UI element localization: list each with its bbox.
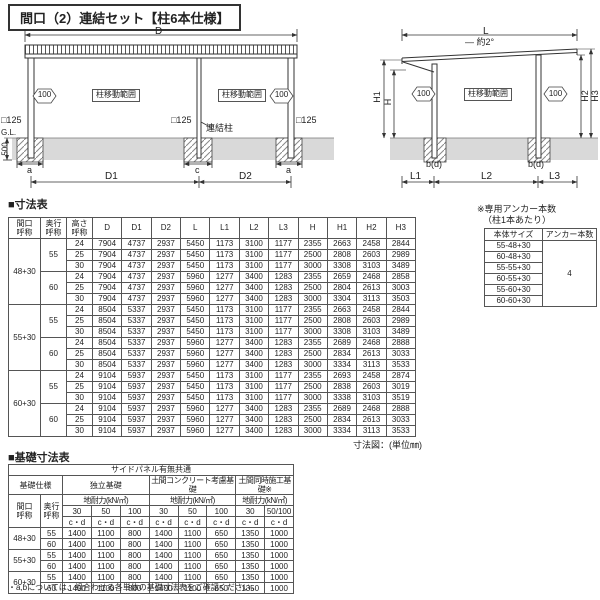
side-dim-h2-label: H2 bbox=[580, 90, 590, 102]
table-cell: 1173 bbox=[210, 261, 239, 272]
table-cell: 2937 bbox=[151, 250, 180, 261]
table-cell: 30 bbox=[67, 426, 93, 437]
table-cell: 4737 bbox=[122, 294, 151, 305]
table-cell: 30 bbox=[67, 327, 93, 338]
table-cell: 8504 bbox=[93, 338, 122, 349]
table-cell: 3019 bbox=[386, 382, 415, 393]
table-cell: 60 bbox=[41, 561, 63, 572]
col-header: L bbox=[181, 218, 210, 239]
table-cell: 3519 bbox=[386, 393, 415, 404]
table-row: 48+3055247904473729375450117331001177235… bbox=[9, 239, 416, 250]
table-row: 60140011008001400110065013501000 bbox=[9, 539, 294, 550]
table-cell: 2689 bbox=[327, 338, 356, 349]
table-row: 3091045937293759601277340012833000333431… bbox=[9, 426, 416, 437]
table-cell: 1350 bbox=[236, 528, 265, 539]
table-cell: 24 bbox=[67, 371, 93, 382]
table-cell: 1100 bbox=[178, 550, 207, 561]
front-dim-a-right-label: a bbox=[286, 166, 291, 176]
table-cell: 2500 bbox=[298, 250, 327, 261]
table-cell: 2937 bbox=[151, 371, 180, 382]
table-cell: 3100 bbox=[239, 371, 268, 382]
table-cell: 2500 bbox=[298, 316, 327, 327]
table-cell: 2355 bbox=[298, 338, 327, 349]
table-cell: 1100 bbox=[91, 539, 120, 550]
table-cell: 1400 bbox=[149, 550, 178, 561]
col-header: 50 bbox=[178, 506, 207, 517]
table-cell: 2663 bbox=[327, 239, 356, 250]
col-header: 間口 呼称 bbox=[9, 218, 41, 239]
table-cell: 2989 bbox=[386, 316, 415, 327]
table-cell: 2937 bbox=[151, 272, 180, 283]
table-cell: 2468 bbox=[357, 338, 386, 349]
table-cell: 5960 bbox=[181, 283, 210, 294]
side-move-100-left-label: 100 bbox=[412, 89, 435, 99]
table-row: 55+3055248504533729375450117331001177235… bbox=[9, 305, 416, 316]
anchor-count-table: 本体サイズ アンカー本数 55-48+30460-48+3055-55+3060… bbox=[484, 228, 597, 307]
table-cell: 30 bbox=[67, 294, 93, 305]
front-post-125-right-label: □125 bbox=[296, 116, 316, 126]
table-cell: 5450 bbox=[181, 393, 210, 404]
table-cell: 2468 bbox=[357, 404, 386, 415]
table-cell: 1000 bbox=[265, 528, 294, 539]
table-cell: 5960 bbox=[181, 360, 210, 371]
dim-table-title: ■寸法表 bbox=[8, 196, 48, 212]
col-header: 50 bbox=[91, 506, 120, 517]
table-cell: 1350 bbox=[236, 539, 265, 550]
table-cell: 8504 bbox=[93, 327, 122, 338]
table-cell: 3000 bbox=[298, 393, 327, 404]
doma-concrete-header: 土間コンクリート考慮基礎 bbox=[149, 476, 236, 495]
table-cell: 3100 bbox=[239, 393, 268, 404]
table-cell: 7904 bbox=[93, 294, 122, 305]
table-cell: 3400 bbox=[239, 338, 268, 349]
table-cell: 3308 bbox=[327, 327, 356, 338]
table-cell: 9104 bbox=[93, 426, 122, 437]
col-header: 50/100 bbox=[265, 506, 294, 517]
col-header: 30 bbox=[63, 506, 92, 517]
front-gl-label: G.L. bbox=[1, 129, 16, 138]
table-cell: 2937 bbox=[151, 261, 180, 272]
table-cell: 55+30 bbox=[9, 305, 41, 371]
table-row: 55-48+304 bbox=[485, 241, 597, 252]
table-cell: 5337 bbox=[122, 316, 151, 327]
table-cell: 1277 bbox=[210, 404, 239, 415]
cd-header: c・d bbox=[91, 517, 120, 528]
footnote: ・a,bについては、組合わせる各単体の基礎寸法表をご確認ください。 bbox=[8, 582, 259, 593]
side-dim-h3-label: H3 bbox=[590, 90, 600, 102]
table-row: 2591045937293754501173310011772500283826… bbox=[9, 382, 416, 393]
table-cell: 8504 bbox=[93, 360, 122, 371]
table-cell: 2355 bbox=[298, 371, 327, 382]
table-cell: 3000 bbox=[298, 294, 327, 305]
front-dim-d1-label: D1 bbox=[105, 171, 118, 182]
table-cell: 5937 bbox=[122, 404, 151, 415]
table-row: 6024850453372937596012773400128323552689… bbox=[9, 338, 416, 349]
foundation-spec-header: 基礎仕様 bbox=[9, 476, 63, 495]
table-cell: 2458 bbox=[357, 239, 386, 250]
table-cell: 2937 bbox=[151, 393, 180, 404]
col-header: H bbox=[298, 218, 327, 239]
table-row: 2579044737293759601277340012832500280426… bbox=[9, 283, 416, 294]
bearing-capacity-header: 地耐力(kN/㎡) bbox=[236, 495, 294, 506]
table-cell: 1277 bbox=[210, 360, 239, 371]
side-dim-l2-label: L2 bbox=[481, 171, 492, 182]
table-cell: 25 bbox=[67, 316, 93, 327]
anchor-note-2: （柱1本あたり） bbox=[483, 213, 551, 226]
table-cell: 800 bbox=[120, 528, 149, 539]
table-cell: 1100 bbox=[178, 539, 207, 550]
okuyuki-header: 奥行 呼称 bbox=[41, 495, 63, 528]
table-cell: 3003 bbox=[386, 283, 415, 294]
table-cell: 1173 bbox=[210, 250, 239, 261]
col-header: 奥行 呼称 bbox=[41, 218, 67, 239]
table-cell: 1283 bbox=[269, 272, 298, 283]
table-cell: 3103 bbox=[357, 393, 386, 404]
table-cell: 3100 bbox=[239, 316, 268, 327]
table-cell: 650 bbox=[207, 561, 236, 572]
side-dim-bd-front-label: b(d) bbox=[426, 160, 442, 170]
table-cell: 5960 bbox=[181, 272, 210, 283]
table-cell: 1283 bbox=[269, 283, 298, 294]
table-row: 2579044737293754501173310011772500280826… bbox=[9, 250, 416, 261]
table-cell: 2613 bbox=[357, 415, 386, 426]
table-cell: 4737 bbox=[122, 261, 151, 272]
table-cell: 2355 bbox=[298, 239, 327, 250]
table-cell: 1100 bbox=[91, 550, 120, 561]
dimension-table: 間口 呼称 奥行 呼称 高さ 呼称 D D1 D2 L L1 L2 L3 H H… bbox=[8, 217, 416, 437]
table-cell: 2603 bbox=[357, 382, 386, 393]
table-cell: 2937 bbox=[151, 360, 180, 371]
table-cell: 5450 bbox=[181, 382, 210, 393]
table-cell: 9104 bbox=[93, 371, 122, 382]
table-cell: 2355 bbox=[298, 305, 327, 316]
table-cell: 2874 bbox=[386, 371, 415, 382]
col-header: D1 bbox=[122, 218, 151, 239]
table-cell: 3033 bbox=[386, 415, 415, 426]
table-cell: 3000 bbox=[298, 261, 327, 272]
table-cell: 3400 bbox=[239, 426, 268, 437]
col-header: 30 bbox=[149, 506, 178, 517]
table-cell: 4 bbox=[543, 241, 597, 307]
table-cell: 24 bbox=[67, 338, 93, 349]
table-cell: 1277 bbox=[210, 272, 239, 283]
table-cell: 1400 bbox=[63, 528, 92, 539]
table-cell: 1000 bbox=[265, 561, 294, 572]
table-cell: 24 bbox=[67, 404, 93, 415]
table-cell: 1100 bbox=[178, 528, 207, 539]
table-cell: 25 bbox=[67, 250, 93, 261]
col-header: L2 bbox=[239, 218, 268, 239]
table-cell: 3400 bbox=[239, 360, 268, 371]
front-post-125-left-label: □125 bbox=[1, 116, 21, 126]
col-header: アンカー本数 bbox=[543, 229, 597, 241]
table-cell: 2834 bbox=[327, 349, 356, 360]
table-cell: 3503 bbox=[386, 294, 415, 305]
table-cell: 3400 bbox=[239, 349, 268, 360]
front-link-post-label: 連結柱 bbox=[206, 124, 233, 134]
table-cell: 1350 bbox=[236, 550, 265, 561]
maguchi-header: 間口 呼称 bbox=[9, 495, 41, 528]
table-cell: 60 bbox=[41, 272, 67, 305]
col-header: 100 bbox=[120, 506, 149, 517]
table-row: 3085045337293754501173310011773000330831… bbox=[9, 327, 416, 338]
table-cell: 60+30 bbox=[9, 371, 41, 437]
table-cell: 60-60+30 bbox=[485, 296, 543, 307]
table-cell: 3533 bbox=[386, 426, 415, 437]
front-move-100-left-label: 100 bbox=[33, 90, 56, 100]
table-cell: 3113 bbox=[357, 426, 386, 437]
table-cell: 7904 bbox=[93, 283, 122, 294]
table-row: 2585045337293754501173310011772500280826… bbox=[9, 316, 416, 327]
table-row: 55+3055140011008001400110065013501000 bbox=[9, 550, 294, 561]
col-header: 100 bbox=[207, 506, 236, 517]
table-cell: 1177 bbox=[269, 316, 298, 327]
table-cell: 25 bbox=[67, 283, 93, 294]
table-cell: 25 bbox=[67, 349, 93, 360]
table-cell: 48+30 bbox=[9, 528, 41, 550]
table-cell: 3103 bbox=[357, 261, 386, 272]
table-cell: 5960 bbox=[181, 426, 210, 437]
table-cell: 1277 bbox=[210, 426, 239, 437]
table-cell: 3113 bbox=[357, 360, 386, 371]
table-cell: 1173 bbox=[210, 327, 239, 338]
side-dim-l-label: L bbox=[483, 26, 489, 37]
table-cell: 3100 bbox=[239, 327, 268, 338]
col-header: 30 bbox=[236, 506, 265, 517]
table-cell: 3100 bbox=[239, 305, 268, 316]
table-cell: 800 bbox=[120, 539, 149, 550]
side-dim-l1-label: L1 bbox=[410, 171, 421, 182]
table-cell: 2500 bbox=[298, 382, 327, 393]
cd-header: c・d bbox=[207, 517, 236, 528]
cd-header: c・d bbox=[178, 517, 207, 528]
table-cell: 5337 bbox=[122, 338, 151, 349]
table-cell: 5937 bbox=[122, 371, 151, 382]
front-dim-d2-label: D2 bbox=[239, 171, 252, 182]
table-cell: 2937 bbox=[151, 305, 180, 316]
table-cell: 25 bbox=[67, 415, 93, 426]
table-cell: 2858 bbox=[386, 272, 415, 283]
table-cell: 1177 bbox=[269, 371, 298, 382]
table-cell: 5937 bbox=[122, 382, 151, 393]
table-cell: 3100 bbox=[239, 250, 268, 261]
side-slope-label: — 約2° bbox=[465, 38, 494, 48]
col-header: 本体サイズ bbox=[485, 229, 543, 241]
front-pillar-range-right-label: 柱移動範囲 bbox=[218, 89, 266, 102]
table-cell: 1100 bbox=[178, 561, 207, 572]
table-cell: 5450 bbox=[181, 371, 210, 382]
table-cell: 4737 bbox=[122, 283, 151, 294]
table-cell: 2937 bbox=[151, 426, 180, 437]
table-cell: 9104 bbox=[93, 382, 122, 393]
col-header: H3 bbox=[386, 218, 415, 239]
table-cell: 2844 bbox=[386, 305, 415, 316]
table-cell: 4737 bbox=[122, 239, 151, 250]
catalog-page: 間口（2）連結セット【柱6本仕様】 bbox=[0, 0, 600, 600]
table-cell: 3100 bbox=[239, 239, 268, 250]
table-cell: 650 bbox=[207, 528, 236, 539]
table-cell: 1283 bbox=[269, 426, 298, 437]
table-cell: 7904 bbox=[93, 272, 122, 283]
table-cell: 2500 bbox=[298, 349, 327, 360]
table-cell: 1177 bbox=[269, 261, 298, 272]
table-row: 60+3055249104593729375450117331001177235… bbox=[9, 371, 416, 382]
side-panel-common-header: サイドパネル有無共通 bbox=[9, 465, 294, 476]
table-cell: 55 bbox=[41, 305, 67, 338]
col-header: L1 bbox=[210, 218, 239, 239]
table-cell: 55-48+30 bbox=[485, 241, 543, 252]
table-cell: 8504 bbox=[93, 349, 122, 360]
table-cell: 2458 bbox=[357, 371, 386, 382]
table-cell: 55 bbox=[41, 550, 63, 561]
table-cell: 60 bbox=[41, 338, 67, 371]
table-cell: 1173 bbox=[210, 393, 239, 404]
table-cell: 2500 bbox=[298, 415, 327, 426]
table-cell: 2468 bbox=[357, 272, 386, 283]
dimension-table-header-row: 間口 呼称 奥行 呼称 高さ 呼称 D D1 D2 L L1 L2 L3 H H… bbox=[9, 218, 416, 239]
table-cell: 3400 bbox=[239, 283, 268, 294]
table-cell: 1400 bbox=[63, 561, 92, 572]
table-cell: 3400 bbox=[239, 404, 268, 415]
table-cell: 3103 bbox=[357, 327, 386, 338]
table-cell: 7904 bbox=[93, 250, 122, 261]
side-dim-l3-label: L3 bbox=[549, 171, 560, 182]
side-dim-h1-label: H1 bbox=[372, 91, 382, 103]
table-cell: 1400 bbox=[149, 539, 178, 550]
table-cell: 1173 bbox=[210, 382, 239, 393]
table-cell: 25 bbox=[67, 382, 93, 393]
table-cell: 1000 bbox=[265, 550, 294, 561]
table-cell: 2808 bbox=[327, 316, 356, 327]
table-cell: 5937 bbox=[122, 426, 151, 437]
table-cell: 2937 bbox=[151, 283, 180, 294]
table-cell: 8504 bbox=[93, 305, 122, 316]
front-move-100-right-label: 100 bbox=[270, 90, 293, 100]
table-cell: 48+30 bbox=[9, 239, 41, 305]
table-cell: 2613 bbox=[357, 283, 386, 294]
table-cell: 1277 bbox=[210, 283, 239, 294]
table-cell: 7904 bbox=[93, 239, 122, 250]
table-cell: 1177 bbox=[269, 239, 298, 250]
table-row: 3079044737293754501173310011773000330831… bbox=[9, 261, 416, 272]
table-cell: 9104 bbox=[93, 404, 122, 415]
table-cell: 55 bbox=[41, 239, 67, 272]
table-cell: 3100 bbox=[239, 382, 268, 393]
table-cell: 1277 bbox=[210, 294, 239, 305]
table-cell: 55-55+30 bbox=[485, 263, 543, 274]
foundation-table-title: ■基礎寸法表 bbox=[8, 449, 70, 465]
table-cell: 1350 bbox=[236, 561, 265, 572]
side-dim-h-label: H bbox=[383, 99, 393, 106]
table-cell: 3489 bbox=[386, 327, 415, 338]
table-cell: 9104 bbox=[93, 415, 122, 426]
table-cell: 2693 bbox=[327, 371, 356, 382]
table-cell: 1283 bbox=[269, 404, 298, 415]
table-row: 2585045337293759601277340012832500283426… bbox=[9, 349, 416, 360]
bearing-capacity-header: 地耐力(kN/㎡) bbox=[149, 495, 236, 506]
table-cell: 5337 bbox=[122, 305, 151, 316]
table-cell: 1177 bbox=[269, 382, 298, 393]
table-cell: 1177 bbox=[269, 250, 298, 261]
side-dim-bd-rear-label: b(d) bbox=[528, 160, 544, 170]
table-cell: 5450 bbox=[181, 327, 210, 338]
table-cell: 3400 bbox=[239, 272, 268, 283]
col-header: D2 bbox=[151, 218, 180, 239]
table-cell: 55 bbox=[41, 371, 67, 404]
table-cell: 1277 bbox=[210, 338, 239, 349]
table-cell: 1177 bbox=[269, 393, 298, 404]
table-cell: 5960 bbox=[181, 349, 210, 360]
table-cell: 1400 bbox=[149, 528, 178, 539]
table-cell: 2458 bbox=[357, 305, 386, 316]
table-cell: 5450 bbox=[181, 250, 210, 261]
table-cell: 3400 bbox=[239, 294, 268, 305]
table-cell: 3308 bbox=[327, 261, 356, 272]
dimension-unit-note: 寸法図：(単位㎜) bbox=[353, 438, 422, 451]
table-cell: 2834 bbox=[327, 415, 356, 426]
table-cell: 60-48+30 bbox=[485, 252, 543, 263]
table-cell: 1277 bbox=[210, 415, 239, 426]
table-cell: 2937 bbox=[151, 239, 180, 250]
table-cell: 3100 bbox=[239, 261, 268, 272]
table-cell: 2937 bbox=[151, 404, 180, 415]
independent-foundation-header: 独立基礎 bbox=[63, 476, 150, 495]
table-cell: 1283 bbox=[269, 338, 298, 349]
table-cell: 1000 bbox=[265, 539, 294, 550]
table-cell: 3000 bbox=[298, 327, 327, 338]
table-cell: 1283 bbox=[269, 349, 298, 360]
table-cell: 5960 bbox=[181, 415, 210, 426]
table-cell: 1177 bbox=[269, 327, 298, 338]
table-cell: 55+30 bbox=[9, 550, 41, 572]
table-cell: 2937 bbox=[151, 415, 180, 426]
table-cell: 30 bbox=[67, 393, 93, 404]
table-row: 3091045937293754501173310011773000333831… bbox=[9, 393, 416, 404]
table-cell: 2689 bbox=[327, 404, 356, 415]
col-header: L3 bbox=[269, 218, 298, 239]
table-cell: 1400 bbox=[63, 539, 92, 550]
table-cell: 2613 bbox=[357, 349, 386, 360]
table-cell: 2603 bbox=[357, 250, 386, 261]
table-cell: 60 bbox=[41, 539, 63, 550]
table-cell: 1283 bbox=[269, 360, 298, 371]
table-cell: 30 bbox=[67, 261, 93, 272]
table-cell: 8504 bbox=[93, 316, 122, 327]
table-cell: 2355 bbox=[298, 272, 327, 283]
anchor-table-header-row: 本体サイズ アンカー本数 bbox=[485, 229, 597, 241]
foundation-header-row-3: 間口 呼称 奥行 呼称 地耐力(kN/㎡) 地耐力(kN/㎡) 地耐力(kN/㎡… bbox=[9, 495, 294, 506]
table-cell: 1277 bbox=[210, 349, 239, 360]
table-cell: 2603 bbox=[357, 316, 386, 327]
bearing-capacity-header: 地耐力(kN/㎡) bbox=[63, 495, 150, 506]
table-cell: 55 bbox=[41, 528, 63, 539]
cd-header: c・d bbox=[63, 517, 92, 528]
table-cell: 7904 bbox=[93, 261, 122, 272]
front-depth-500-label: 500 bbox=[1, 142, 10, 155]
table-cell: 5450 bbox=[181, 305, 210, 316]
table-cell: 800 bbox=[120, 550, 149, 561]
table-cell: 24 bbox=[67, 239, 93, 250]
table-cell: 1283 bbox=[269, 294, 298, 305]
table-cell: 4737 bbox=[122, 250, 151, 261]
table-cell: 3338 bbox=[327, 393, 356, 404]
table-cell: 3304 bbox=[327, 294, 356, 305]
col-header: D bbox=[93, 218, 122, 239]
table-cell: 5960 bbox=[181, 404, 210, 415]
table-cell: 3000 bbox=[298, 360, 327, 371]
table-cell: 2355 bbox=[298, 404, 327, 415]
table-cell: 2804 bbox=[327, 283, 356, 294]
